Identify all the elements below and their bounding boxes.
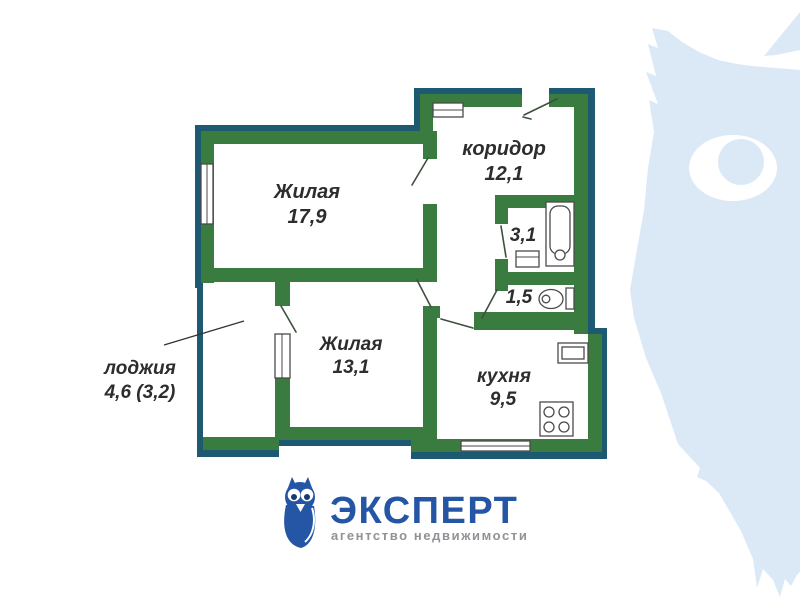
room-corridor-area: 12,1 [485,163,524,185]
room-living1-area: 17,9 [288,206,328,228]
room-corridor-name: коридор [462,138,546,160]
agency-logo: ЭКСПЕРТ агентство недвижимости [284,477,528,548]
door-balcony [281,306,296,332]
owl-body [284,505,315,548]
room-wc-area: 1,5 [506,287,533,308]
loggia-leader-line [164,321,244,345]
owl-logo-icon [284,477,315,548]
room-loggia-name: лоджия [103,358,176,379]
toilet-icon [539,288,574,309]
room-living1-label: Жилая 17,9 [273,181,340,228]
owl-watermark-eye-crescent [718,139,764,185]
room-loggia-area: 4,6 (3,2) [104,382,176,403]
door-entrance [523,99,557,119]
room-corridor-label: коридор 12,1 [462,138,546,185]
bathtub-icon [546,202,574,266]
door-living2 [417,280,431,307]
window-corridor-niche [433,103,463,117]
room-kitchen-name: кухня [477,366,531,387]
window-kitchen [461,441,530,451]
room-kitchen-area: 9,5 [490,389,517,410]
door-bath [501,226,506,257]
owl-watermark-body [630,28,800,597]
room-loggia-label: лоджия 4,6 (3,2) [103,358,176,403]
stove-icon [540,402,573,436]
door-kitchen [441,319,473,328]
floor-plan-page: Жилая 17,9 коридор 12,1 3,1 1,5 Жилая 13… [0,0,800,600]
door-living1 [412,158,428,185]
owl-watermark [630,12,800,597]
window-living1 [201,164,213,224]
floor-plan-canvas: Жилая 17,9 коридор 12,1 3,1 1,5 Жилая 13… [0,0,800,600]
window-loggia [275,334,290,378]
kitchen-sink-icon [558,343,588,363]
room-living1-name: Жилая [273,181,340,203]
room-kitchen-label: кухня 9,5 [477,366,531,410]
owl-pupil-right [304,494,310,500]
room-living2-label: Жилая 13,1 [319,334,383,378]
room-living2-name: Жилая [319,334,383,355]
bath-sink-icon [516,251,539,267]
owl-watermark-ear [764,12,800,56]
room-bath-area: 3,1 [510,225,536,246]
brand-tagline: агентство недвижимости [331,528,528,543]
brand-name: ЭКСПЕРТ [330,490,518,532]
room-living2-area: 13,1 [333,357,370,378]
owl-pupil-left [291,494,297,500]
